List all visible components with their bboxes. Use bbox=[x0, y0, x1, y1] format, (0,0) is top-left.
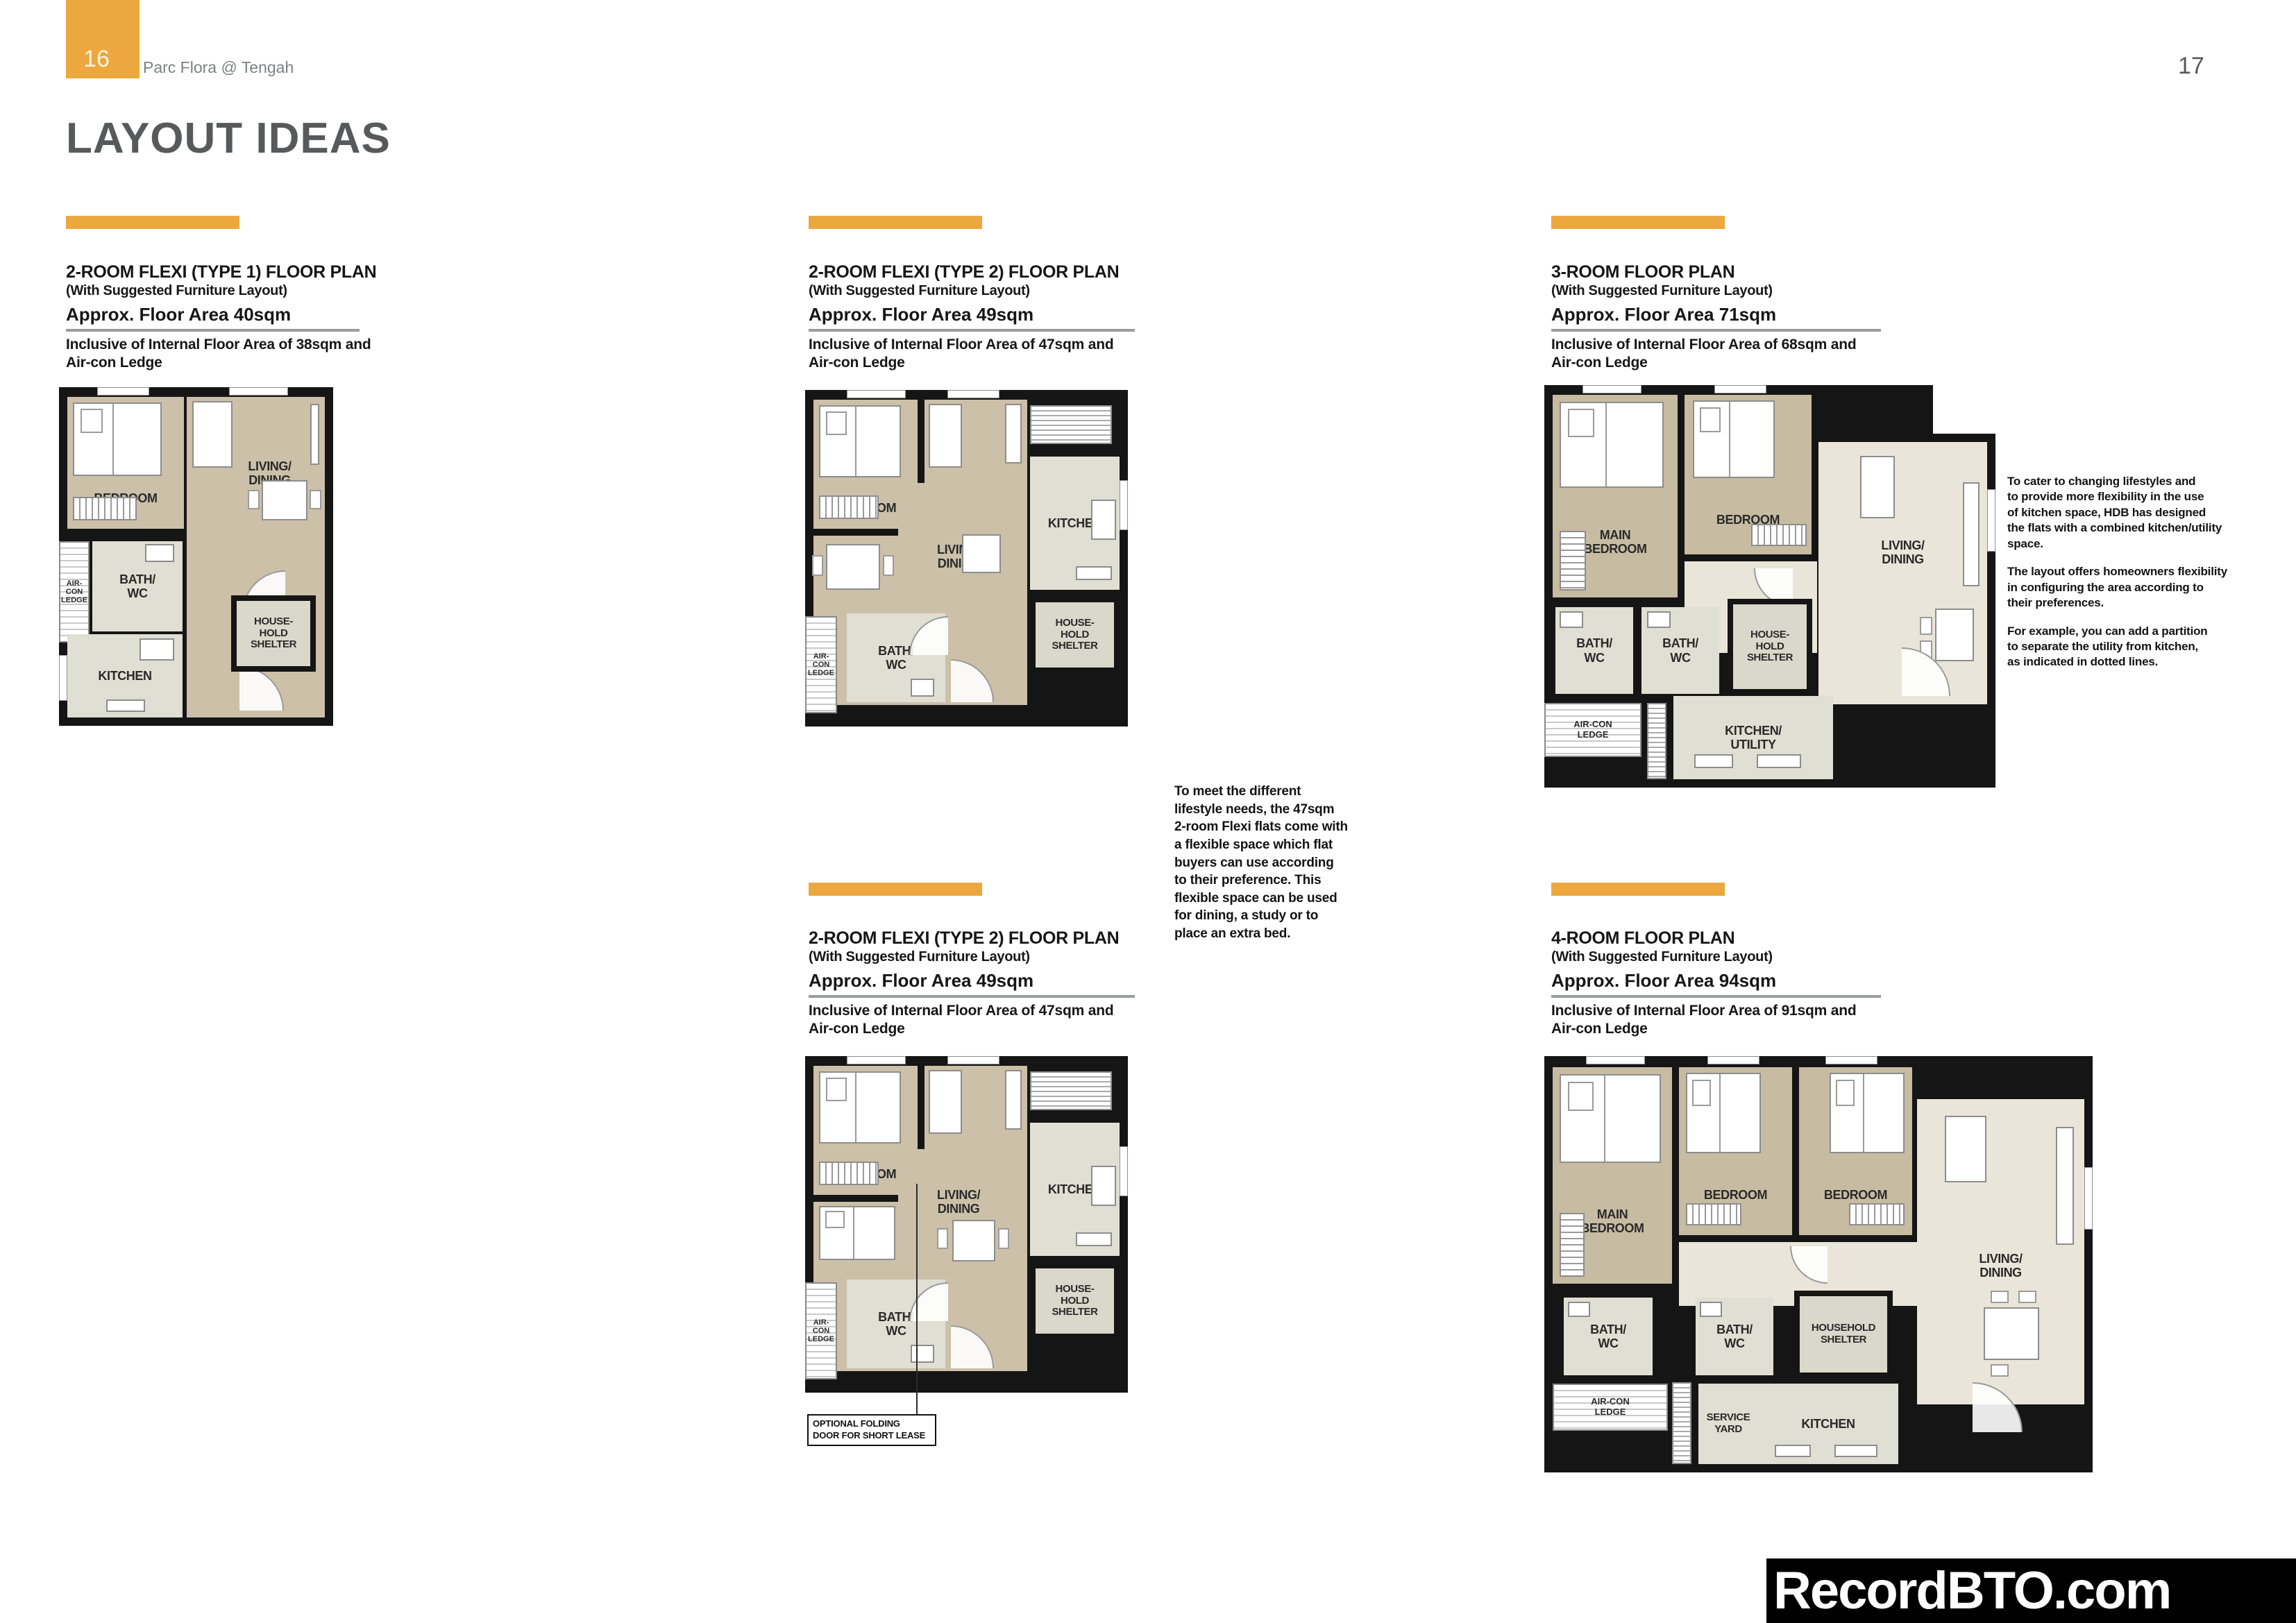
ladder-icon bbox=[1672, 1382, 1691, 1464]
right-page-number: 17 bbox=[2178, 53, 2204, 80]
cabinet-icon bbox=[1005, 404, 1022, 464]
floorplan-2room-type2: BEDROOM LIVING/ DINING KITCHEN AIR- CON … bbox=[805, 390, 1128, 726]
plan1-inclusive: Inclusive of Internal Floor Area of 38sq… bbox=[66, 336, 371, 373]
bed-icon bbox=[819, 405, 901, 477]
bed-icon bbox=[73, 402, 162, 476]
dining-table-icon bbox=[262, 480, 307, 520]
accent-bar bbox=[809, 883, 982, 896]
window-slot bbox=[1586, 1056, 1645, 1064]
sofa-icon bbox=[929, 404, 962, 468]
window-slot bbox=[847, 390, 906, 398]
basin-icon bbox=[1560, 611, 1583, 628]
floorplan-2room-type2-shortlease: BEDROOM LIVING/ DINING KITCHEN AIR- CON … bbox=[805, 1056, 1128, 1393]
plan2-title: 2-ROOM FLEXI (TYPE 2) FLOOR PLAN bbox=[809, 262, 1119, 282]
plan4-area: Approx. Floor Area 49sqm bbox=[809, 970, 1033, 992]
chair-icon bbox=[1991, 1291, 2009, 1303]
room-kitchen-utility: KITCHEN/ UTILITY bbox=[1673, 696, 1833, 779]
stove-icon bbox=[106, 699, 145, 712]
stove-icon bbox=[1076, 566, 1112, 580]
room-bath1: BATH/ WC bbox=[1555, 607, 1633, 694]
room-bath2: BATH/ WC bbox=[1696, 1298, 1773, 1375]
sofa-icon bbox=[2056, 1127, 2074, 1245]
window-slot bbox=[1825, 1056, 1877, 1064]
floorplan-3room: MAIN BEDROOM BEDROOM LIVING/ DINING BATH… bbox=[1544, 385, 1995, 788]
room-kitchen: KITCHEN bbox=[1030, 457, 1120, 590]
page-title: LAYOUT IDEAS bbox=[66, 114, 391, 163]
dining-table-icon bbox=[1935, 609, 1974, 661]
basin-icon bbox=[911, 679, 934, 697]
chair-icon bbox=[998, 1228, 1009, 1249]
accent-bar bbox=[809, 216, 982, 229]
wardrobe-icon bbox=[73, 497, 137, 520]
kitchen-note-p3: For example, you can add a partition to … bbox=[2007, 624, 2236, 670]
wardrobe-icon bbox=[1849, 1203, 1905, 1225]
bed-icon bbox=[1693, 400, 1775, 478]
cabinet-icon bbox=[1005, 1070, 1022, 1130]
chair-icon bbox=[883, 555, 894, 576]
tv-console-icon bbox=[310, 404, 319, 465]
entry-door-arc-icon bbox=[1973, 1382, 2023, 1432]
window-slot bbox=[947, 1056, 999, 1064]
chair-icon bbox=[1920, 617, 1932, 635]
wardrobe-icon bbox=[1751, 524, 1807, 546]
plan5-inclusive: Inclusive of Internal Floor Area of 91sq… bbox=[1551, 1002, 1857, 1039]
sofa-icon bbox=[192, 401, 233, 468]
chair-icon bbox=[248, 490, 260, 509]
page-tab: 16 bbox=[66, 0, 140, 78]
kitchen-note-p2: The layout offers homeowners flexibility… bbox=[2007, 564, 2236, 611]
window-slot bbox=[1120, 1146, 1128, 1196]
plan4-inclusive: Inclusive of Internal Floor Area of 47sq… bbox=[809, 1002, 1114, 1039]
building-notch bbox=[1933, 385, 1995, 434]
plan1-title: 2-ROOM FLEXI (TYPE 1) FLOOR PLAN bbox=[66, 262, 376, 282]
chair-icon bbox=[2018, 1291, 2036, 1303]
plan4-title: 2-ROOM FLEXI (TYPE 2) FLOOR PLAN bbox=[809, 928, 1119, 949]
window-slot bbox=[947, 390, 999, 398]
sofa-icon bbox=[929, 1070, 962, 1134]
wardrobe-icon bbox=[1560, 531, 1586, 590]
chair-icon bbox=[1991, 1364, 2009, 1377]
wall-segment bbox=[813, 529, 898, 536]
room-aircon-ledge: AIR-CON LEDGE bbox=[1553, 1384, 1668, 1431]
window-slot bbox=[59, 655, 67, 701]
divider bbox=[1551, 329, 1881, 332]
single-bed-icon bbox=[819, 1206, 895, 1260]
door-arc-icon bbox=[1790, 1246, 1827, 1284]
room-household-shelter: HOUSE- HOLD SHELTER bbox=[231, 595, 316, 672]
drying-rack-icon bbox=[1030, 1071, 1112, 1110]
wall-segment bbox=[813, 1195, 898, 1202]
kitchen-note: To cater to changing lifestyles and to p… bbox=[2007, 474, 2236, 683]
plan2-subtitle: (With Suggested Furniture Layout) bbox=[809, 283, 1030, 299]
divider bbox=[809, 995, 1135, 998]
window-slot bbox=[1987, 489, 1995, 552]
cabinet-icon bbox=[1945, 1116, 1986, 1182]
callout-line bbox=[916, 1184, 918, 1414]
bed-icon bbox=[1560, 402, 1664, 488]
bed-icon bbox=[1560, 1074, 1661, 1163]
wall-segment bbox=[918, 1066, 925, 1149]
plan3-inclusive: Inclusive of Internal Floor Area of 68sq… bbox=[1551, 336, 1857, 373]
window-slot bbox=[847, 1056, 906, 1064]
drying-rack-icon bbox=[1030, 405, 1112, 444]
window-slot bbox=[1714, 385, 1766, 393]
dining-table-icon bbox=[1984, 1307, 2039, 1360]
divider bbox=[809, 329, 1135, 332]
divider bbox=[66, 329, 360, 332]
plan5-area: Approx. Floor Area 94sqm bbox=[1551, 970, 1776, 992]
room-household-shelter: HOUSE- HOLD SHELTER bbox=[1030, 597, 1120, 673]
room-living: LIVING/ DINING bbox=[1917, 1099, 2084, 1404]
dining-table-icon bbox=[952, 1220, 995, 1261]
basin-icon bbox=[1700, 1302, 1722, 1317]
basin-icon bbox=[145, 544, 174, 562]
room-service-yard: SERVICE YARD bbox=[1698, 1384, 1758, 1464]
room-bedroom: BEDROOM bbox=[1685, 395, 1812, 554]
plan1-subtitle: (With Suggested Furniture Layout) bbox=[66, 283, 287, 299]
room-bedroom2: BEDROOM bbox=[1679, 1067, 1792, 1235]
brand-text: Parc Flora @ Tengah bbox=[143, 58, 294, 77]
room-bath: BATH/ WC bbox=[92, 541, 183, 631]
plan3-title: 3-ROOM FLOOR PLAN bbox=[1551, 262, 1734, 282]
flexi-note: To meet the different lifestyle needs, t… bbox=[1174, 783, 1348, 943]
room-kitchen: KITCHEN bbox=[1030, 1123, 1120, 1256]
floorplan-4room: MAIN BEDROOM BEDROOM BEDROOM LIVING/ DIN… bbox=[1544, 1056, 2093, 1472]
stove-icon bbox=[1076, 1232, 1112, 1246]
room-household-shelter: HOUSE- HOLD SHELTER bbox=[1030, 1263, 1120, 1339]
room-kitchen: KITCHEN bbox=[1758, 1384, 1898, 1464]
cabinet-icon bbox=[1860, 456, 1895, 518]
window-slot bbox=[2084, 1167, 2093, 1230]
entry-door-arc-icon bbox=[239, 666, 284, 711]
bed-icon bbox=[1830, 1073, 1905, 1153]
plan3-subtitle: (With Suggested Furniture Layout) bbox=[1551, 283, 1773, 299]
room-bath2: BATH/ WC bbox=[1641, 607, 1719, 694]
window-slot bbox=[97, 387, 149, 396]
accent-bar bbox=[1551, 883, 1725, 896]
room-aircon-ledge: AIR- CON LEDGE bbox=[59, 541, 90, 643]
plan5-subtitle: (With Suggested Furniture Layout) bbox=[1551, 949, 1773, 965]
kitchen-note-p1: To cater to changing lifestyles and to p… bbox=[2007, 474, 2236, 552]
sink-icon bbox=[1775, 1445, 1811, 1457]
basin-icon bbox=[1647, 611, 1671, 628]
chair-icon bbox=[937, 1228, 948, 1249]
room-bedroom3: BEDROOM bbox=[1799, 1067, 1912, 1235]
room-main-bedroom: MAIN BEDROOM bbox=[1553, 395, 1678, 597]
wardrobe-icon bbox=[819, 495, 879, 519]
wardrobe-icon bbox=[819, 1162, 879, 1185]
bed-icon bbox=[819, 1071, 901, 1144]
sofa-icon bbox=[1963, 482, 1980, 586]
optional-door-callout: OPTIONAL FOLDING DOOR FOR SHORT LEASE bbox=[807, 1414, 936, 1446]
basin-icon bbox=[1568, 1302, 1590, 1317]
plan1-area: Approx. Floor Area 40sqm bbox=[66, 304, 291, 325]
plan3-area: Approx. Floor Area 71sqm bbox=[1551, 304, 1776, 325]
room-living-label: LIVING/ DINING bbox=[937, 1188, 980, 1216]
floorplan-2room-type1: BEDROOM LIVING/ DINING AIR- CON LEDGE BA… bbox=[59, 387, 333, 726]
accent-bar bbox=[1551, 216, 1725, 229]
sink-icon bbox=[1091, 1166, 1116, 1206]
stove-icon bbox=[1834, 1445, 1877, 1457]
ladder-icon bbox=[1647, 703, 1666, 779]
sink-icon bbox=[1694, 754, 1733, 768]
room-bedroom: BEDROOM bbox=[67, 397, 184, 529]
accent-bar bbox=[66, 216, 239, 229]
window-slot bbox=[1582, 385, 1641, 393]
plan4-subtitle: (With Suggested Furniture Layout) bbox=[809, 949, 1030, 965]
dining-table-icon bbox=[826, 544, 880, 590]
room-household-shelter: HOUSE- HOLD SHELTER bbox=[1728, 599, 1812, 695]
brochure-page: 16 Parc Flora @ Tengah 17 LAYOUT IDEAS 2… bbox=[0, 0, 2296, 1623]
wardrobe-icon bbox=[1560, 1213, 1585, 1277]
bed-icon bbox=[1686, 1073, 1761, 1153]
room-bath1: BATH/ WC bbox=[1564, 1298, 1653, 1375]
plan5-title: 4-ROOM FLOOR PLAN bbox=[1551, 928, 1734, 949]
stove-icon bbox=[1757, 754, 1801, 768]
plan2-area: Approx. Floor Area 49sqm bbox=[809, 304, 1033, 325]
sink-icon bbox=[1091, 500, 1116, 540]
basin-icon bbox=[911, 1345, 934, 1363]
room-aircon-ledge: AIR- CON LEDGE bbox=[805, 1282, 837, 1379]
room-aircon-ledge: AIR-CON LEDGE bbox=[1544, 703, 1641, 757]
window-slot bbox=[229, 387, 288, 396]
wall-segment bbox=[918, 400, 925, 483]
sink-icon bbox=[140, 638, 174, 661]
chair-icon bbox=[310, 490, 321, 509]
room-kitchen: KITCHEN bbox=[67, 634, 183, 717]
table-icon bbox=[962, 534, 1001, 573]
window-slot bbox=[1707, 1056, 1759, 1064]
room-living: LIVING/ DINING bbox=[1818, 442, 1987, 704]
chair-icon bbox=[812, 555, 823, 576]
room-household-shelter: HOUSEHOLD SHELTER bbox=[1794, 1291, 1893, 1378]
left-page-number: 16 bbox=[66, 46, 127, 73]
watermark: RecordBTO.com bbox=[1766, 1558, 2296, 1623]
wardrobe-icon bbox=[1686, 1203, 1741, 1225]
window-slot bbox=[1120, 480, 1128, 530]
room-main-bedroom: MAIN BEDROOM bbox=[1553, 1067, 1672, 1284]
plan2-inclusive: Inclusive of Internal Floor Area of 47sq… bbox=[809, 336, 1114, 373]
divider bbox=[1551, 995, 1881, 998]
room-aircon-ledge: AIR- CON LEDGE bbox=[805, 616, 837, 713]
